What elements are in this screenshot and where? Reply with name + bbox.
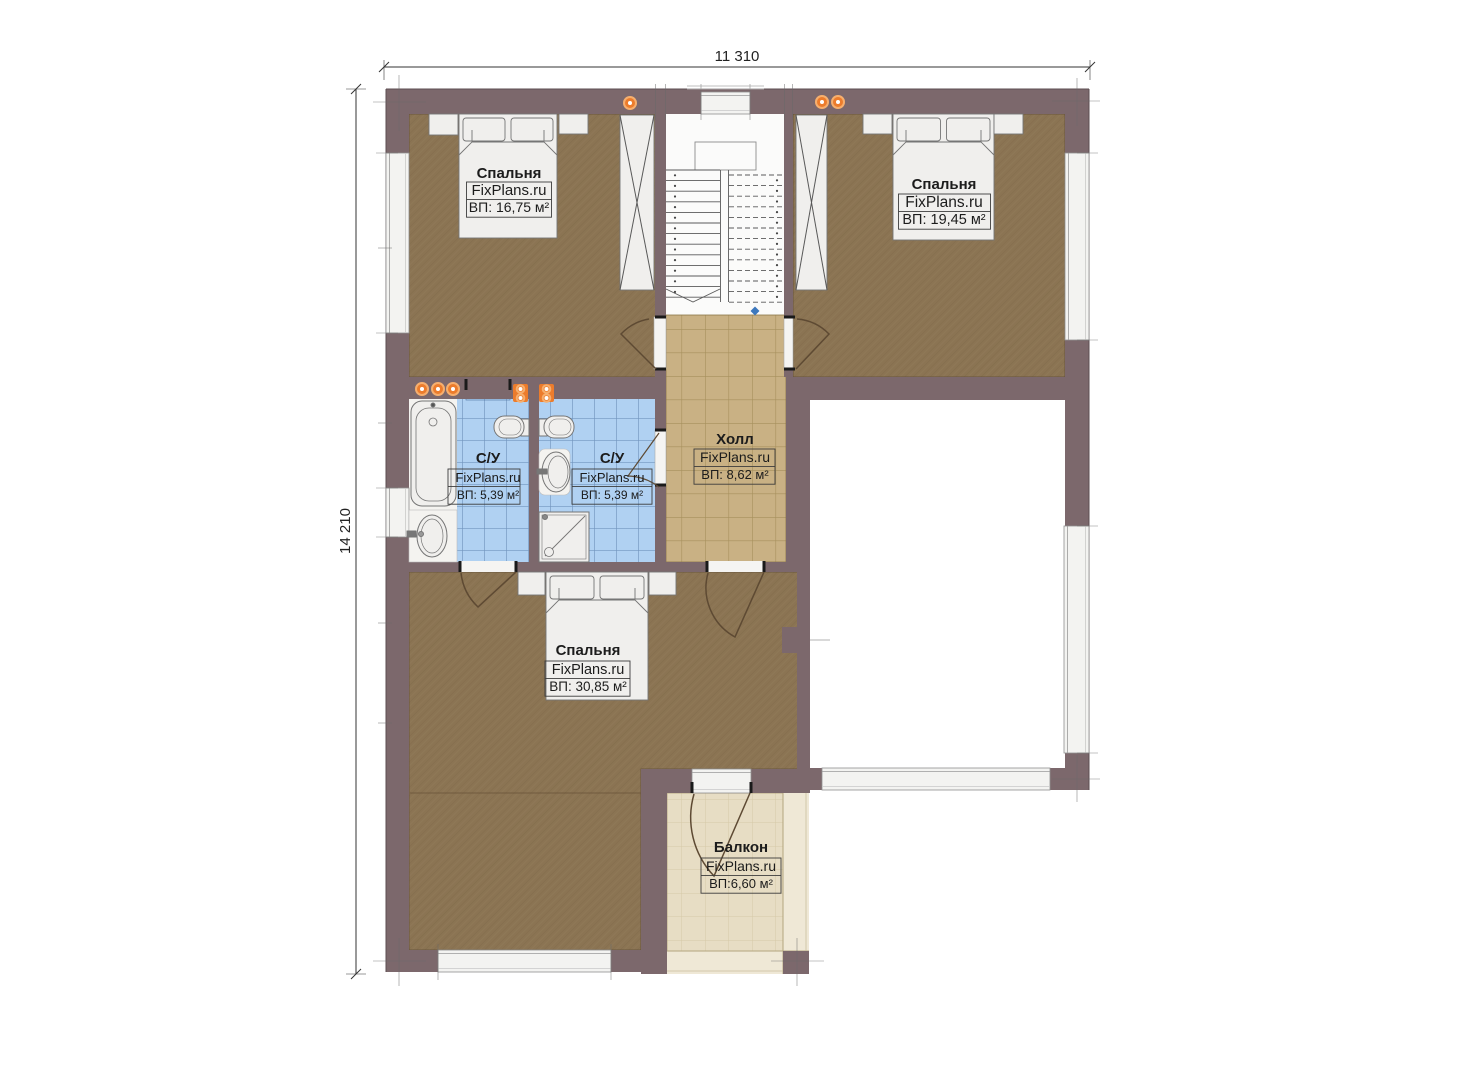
svg-text:ВП: 5,39 м²: ВП: 5,39 м² [457,488,519,502]
svg-text:ВП: 30,85 м²: ВП: 30,85 м² [549,679,627,694]
svg-text:FixPlans.ru: FixPlans.ru [455,470,520,485]
svg-text:FixPlans.ru: FixPlans.ru [471,182,546,199]
svg-text:ВП: 5,39 м²: ВП: 5,39 м² [581,488,643,502]
svg-text:Балкон: Балкон [714,839,768,856]
svg-text:Спальня: Спальня [556,642,621,659]
svg-text:Спальня: Спальня [912,176,977,193]
svg-text:ВП: 8,62 м²: ВП: 8,62 м² [701,467,769,482]
svg-text:Холл: Холл [716,431,754,448]
svg-text:ВП:6,60 м²: ВП:6,60 м² [709,876,773,891]
svg-text:11 310: 11 310 [715,48,760,65]
svg-text:FixPlans.ru: FixPlans.ru [700,449,770,465]
svg-text:14 210: 14 210 [337,508,354,554]
svg-text:FixPlans.ru: FixPlans.ru [706,858,776,874]
svg-text:FixPlans.ru: FixPlans.ru [905,194,983,211]
svg-text:С/У: С/У [476,450,501,467]
svg-text:ВП: 19,45 м²: ВП: 19,45 м² [902,212,985,228]
svg-text:Спальня: Спальня [477,165,542,182]
svg-text:FixPlans.ru: FixPlans.ru [552,662,625,678]
svg-text:ВП: 16,75 м²: ВП: 16,75 м² [469,199,550,215]
svg-text:С/У: С/У [600,450,625,467]
svg-text:FixPlans.ru: FixPlans.ru [579,470,644,485]
